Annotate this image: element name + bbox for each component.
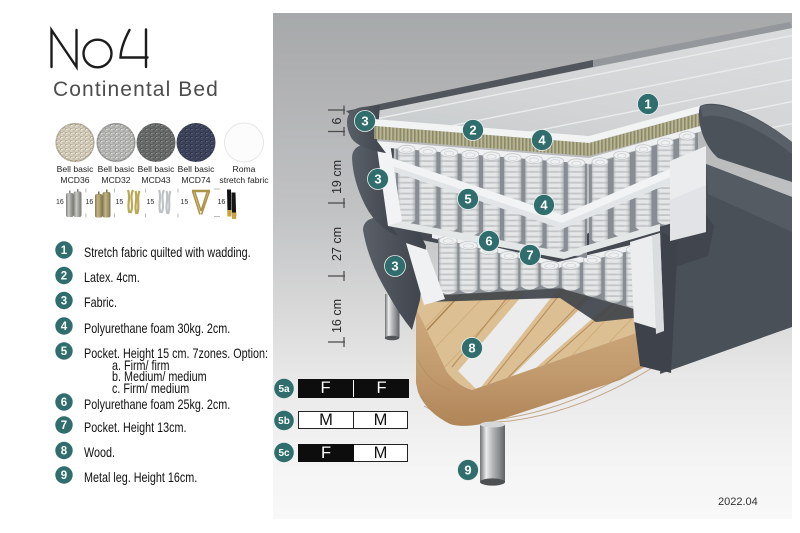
svg-text:2: 2 bbox=[469, 123, 476, 138]
svg-text:5: 5 bbox=[61, 346, 68, 358]
svg-text:4: 4 bbox=[61, 321, 68, 333]
svg-text:4: 4 bbox=[540, 198, 548, 213]
svg-text:8: 8 bbox=[468, 341, 475, 356]
svg-text:19 cm: 19 cm bbox=[330, 160, 344, 194]
svg-text:3: 3 bbox=[374, 172, 381, 187]
svg-text:5c: 5c bbox=[278, 448, 290, 459]
svg-text:1: 1 bbox=[644, 97, 651, 112]
svg-text:7: 7 bbox=[526, 248, 533, 263]
svg-text:16: 16 bbox=[218, 199, 226, 206]
svg-text:6: 6 bbox=[485, 234, 492, 249]
svg-text:15: 15 bbox=[181, 199, 189, 206]
svg-text:6: 6 bbox=[330, 117, 344, 124]
svg-text:5: 5 bbox=[464, 192, 471, 207]
svg-text:2: 2 bbox=[61, 271, 67, 283]
svg-text:7: 7 bbox=[61, 420, 67, 432]
svg-text:5a: 5a bbox=[278, 384, 290, 395]
svg-text:15: 15 bbox=[116, 199, 124, 206]
svg-text:8: 8 bbox=[61, 446, 68, 458]
svg-text:1: 1 bbox=[61, 245, 68, 257]
svg-text:15: 15 bbox=[147, 199, 155, 206]
svg-text:9: 9 bbox=[61, 470, 67, 482]
svg-text:3: 3 bbox=[391, 259, 398, 274]
svg-text:9: 9 bbox=[464, 463, 471, 478]
svg-text:16: 16 bbox=[56, 199, 64, 206]
svg-text:5b: 5b bbox=[278, 416, 290, 427]
svg-text:27 cm: 27 cm bbox=[330, 227, 344, 261]
svg-text:3: 3 bbox=[61, 296, 67, 308]
svg-text:3: 3 bbox=[361, 114, 368, 129]
svg-text:16: 16 bbox=[86, 199, 94, 206]
svg-text:6: 6 bbox=[61, 397, 67, 409]
svg-text:16 cm: 16 cm bbox=[330, 299, 344, 333]
svg-text:4: 4 bbox=[538, 133, 546, 148]
